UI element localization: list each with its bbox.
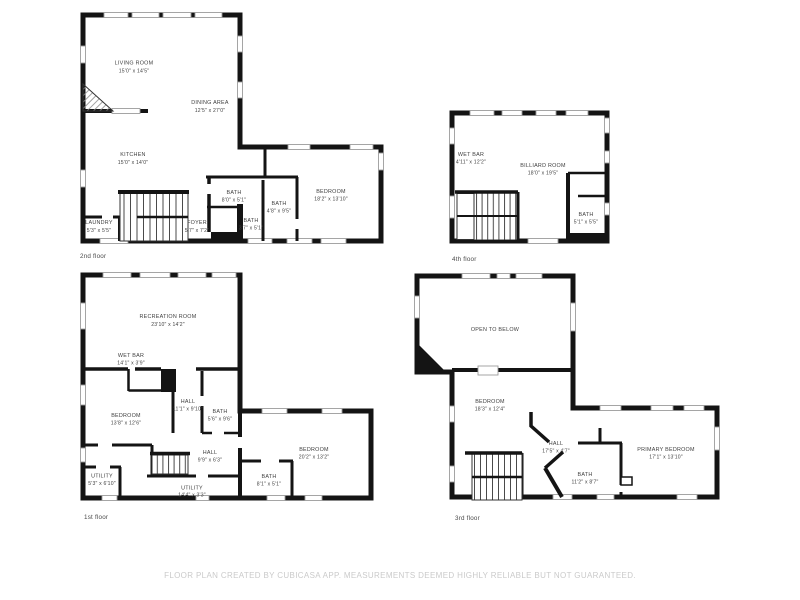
room-label-living-room: LIVING ROOM bbox=[115, 61, 154, 67]
room-dims-bedroom-3rd: 18'3" x 12'4" bbox=[475, 407, 506, 413]
room-dims-wet-bar-1st: 14'1" x 3'9" bbox=[117, 361, 145, 367]
disclaimer-text: FLOOR PLAN CREATED BY CUBICASA APP. MEAS… bbox=[0, 571, 800, 580]
staircase-3rd-floor bbox=[465, 453, 522, 500]
room-label-foyer: FOYER bbox=[187, 220, 207, 226]
room-label-hall-1: HALL bbox=[181, 399, 196, 405]
room-label-dining-area: DINING AREA bbox=[191, 100, 229, 106]
room-dims-bath-3: 3'7" x 5'1" bbox=[239, 226, 263, 232]
room-dims-bath-1st-a: 5'6" x 9'6" bbox=[208, 417, 232, 423]
room-dims-living-room: 15'0" x 14'5" bbox=[119, 69, 150, 75]
room-dims-hall-1: 11'1" x 9'10" bbox=[173, 407, 203, 413]
room-label-recreation-room: RECREATION ROOM bbox=[140, 314, 197, 320]
room-dims-dining-area: 12'5" x 27'0" bbox=[195, 108, 226, 114]
room-label-bedroom-ext: BEDROOM bbox=[299, 447, 329, 453]
room-dims-hall-2: 9'9" x 6'3" bbox=[198, 458, 222, 464]
room-label-hall-2: HALL bbox=[203, 450, 218, 456]
walls-1st-floor bbox=[81, 273, 372, 501]
room-dims-bedroom-ext: 20'2" x 13'2" bbox=[299, 455, 330, 461]
room-label-bath-1: BATH bbox=[227, 190, 242, 196]
room-label-bedroom-3rd: BEDROOM bbox=[475, 399, 505, 405]
floor-label-2nd: 2nd floor bbox=[80, 253, 106, 260]
room-dims-laundry: 5'3" x 5'5" bbox=[87, 228, 111, 234]
floor-plan-2nd-floor: LIVING ROOM 15'0" x 14'5" DINING AREA 12… bbox=[78, 8, 390, 264]
floor-plan-sheet: LIVING ROOM 15'0" x 14'5" DINING AREA 12… bbox=[0, 0, 800, 600]
room-label-bath-2: BATH bbox=[272, 201, 287, 207]
room-label-bedroom-1st: BEDROOM bbox=[111, 413, 141, 419]
floor-plan-4th-floor: WET BAR 4'11" x 12'2" BILLIARD ROOM 18'0… bbox=[446, 106, 618, 266]
room-label-utility-1: UTILITY bbox=[91, 474, 113, 480]
room-dims-utility-1: 5'3" x 6'10" bbox=[88, 481, 116, 487]
room-label-primary-bedroom: PRIMARY BEDROOM bbox=[637, 447, 695, 453]
floor-label-4th: 4th floor bbox=[452, 256, 477, 263]
room-dims-bath-1st-b: 8'1" x 5'1" bbox=[257, 482, 281, 488]
room-dims-bedroom: 18'2" x 13'10" bbox=[314, 197, 348, 203]
room-dims-bath-3rd: 11'2" x 8'7" bbox=[571, 480, 598, 486]
staircase-1st-floor bbox=[150, 454, 190, 475]
room-dims-kitchen: 15'0" x 14'0" bbox=[118, 160, 149, 166]
room-dims-hall-3rd: 17'5" x 4'7" bbox=[542, 449, 570, 455]
room-label-wet-bar-4th: WET BAR bbox=[458, 152, 484, 158]
walls-2nd-floor bbox=[81, 13, 384, 244]
floor-plan-1st-floor: RECREATION ROOM 23'10" x 14'2" WET BAR 1… bbox=[78, 268, 378, 526]
room-dims-recreation-room: 23'10" x 14'2" bbox=[151, 322, 185, 328]
room-label-bath-3rd: BATH bbox=[578, 472, 593, 478]
room-dims-utility-2: 14'4" x 3'3" bbox=[178, 493, 206, 499]
room-dims-bath-2: 4'8" x 9'5" bbox=[267, 209, 291, 215]
room-dims-billiard-room: 18'0" x 19'5" bbox=[528, 171, 559, 177]
floor-plan-3rd-floor: OPEN TO BELOW BEDROOM 18'3" x 12'4" HALL… bbox=[410, 268, 724, 526]
room-dims-wet-bar-4th: 4'11" x 12'2" bbox=[456, 160, 486, 166]
staircase-4th-floor bbox=[455, 192, 518, 240]
floor-label-1st: 1st floor bbox=[84, 514, 108, 521]
room-label-bedroom: BEDROOM bbox=[316, 189, 346, 195]
room-label-bath-1st-b: BATH bbox=[262, 474, 277, 480]
room-label-utility-2: UTILITY bbox=[181, 486, 203, 492]
room-dims-bath-4th: 5'1" x 5'5" bbox=[574, 220, 598, 226]
room-dims-bath-1: 8'0" x 5'1" bbox=[222, 198, 246, 204]
walls-3rd-floor bbox=[415, 274, 720, 501]
room-label-wet-bar-1st: WET BAR bbox=[118, 353, 144, 359]
room-label-open-to-below: OPEN TO BELOW bbox=[471, 327, 520, 333]
room-dims-primary-bedroom: 17'1" x 13'10" bbox=[649, 455, 683, 461]
room-label-laundry: LAUNDRY bbox=[85, 220, 113, 226]
floor-label-3rd: 3rd floor bbox=[455, 515, 480, 522]
room-dims-bedroom-1st: 13'8" x 12'6" bbox=[111, 421, 142, 427]
room-label-bath-4th: BATH bbox=[579, 212, 594, 218]
room-dims-foyer: 5'7" x 7'2" bbox=[185, 228, 209, 234]
room-label-bath-1st-a: BATH bbox=[213, 409, 228, 415]
room-label-billiard-room: BILLIARD ROOM bbox=[520, 163, 566, 169]
room-label-kitchen: KITCHEN bbox=[120, 152, 145, 158]
staircase-2nd-floor bbox=[118, 192, 189, 241]
room-label-bath-3: BATH bbox=[244, 218, 259, 224]
room-label-hall-3rd: HALL bbox=[549, 441, 564, 447]
